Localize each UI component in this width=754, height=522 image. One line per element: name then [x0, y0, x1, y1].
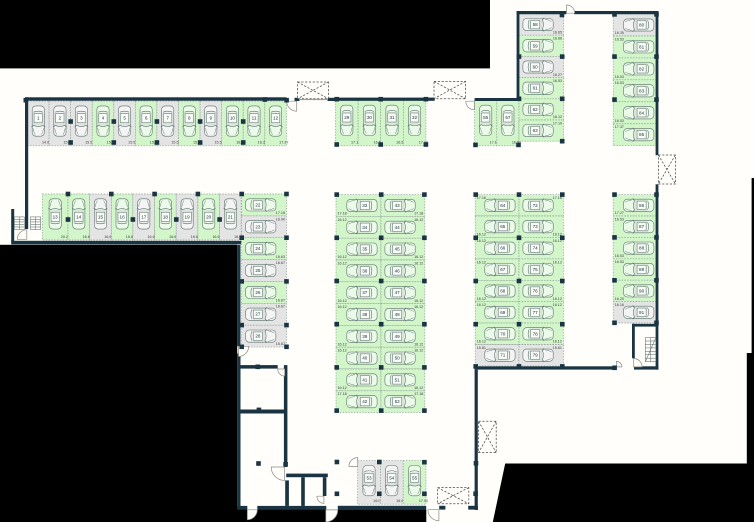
svg-text:67: 67	[500, 267, 506, 272]
svg-text:23: 23	[255, 224, 261, 229]
svg-text:89: 89	[639, 267, 645, 272]
svg-text:16.66: 16.66	[553, 37, 562, 41]
svg-text:15.81: 15.81	[553, 346, 562, 350]
svg-text:18: 18	[163, 214, 169, 219]
svg-text:3: 3	[80, 116, 83, 121]
svg-text:17.27: 17.27	[615, 211, 624, 215]
svg-text:83: 83	[639, 88, 645, 93]
svg-text:16.12: 16.12	[338, 299, 347, 303]
svg-text:16.12: 16.12	[477, 233, 486, 237]
svg-text:10: 10	[230, 116, 236, 121]
svg-text:16.12: 16.12	[553, 303, 562, 307]
svg-text:84: 84	[639, 110, 645, 115]
svg-text:16.12: 16.12	[477, 260, 486, 264]
svg-text:16.53: 16.53	[553, 79, 562, 83]
svg-text:16.12: 16.12	[414, 218, 423, 222]
svg-text:76: 76	[533, 289, 539, 294]
svg-text:42: 42	[362, 399, 368, 404]
svg-text:16.12: 16.12	[477, 303, 486, 307]
svg-text:16.12: 16.12	[477, 297, 486, 301]
svg-text:16.12: 16.12	[338, 342, 347, 346]
svg-text:35: 35	[362, 247, 368, 252]
svg-text:16.16: 16.16	[615, 303, 624, 307]
svg-text:30: 30	[367, 115, 373, 120]
svg-text:47: 47	[395, 290, 401, 295]
svg-text:41: 41	[362, 377, 368, 382]
svg-text:53: 53	[366, 475, 372, 480]
svg-text:16.12: 16.12	[338, 255, 347, 259]
svg-text:55: 55	[412, 475, 418, 480]
svg-text:65: 65	[500, 224, 506, 229]
svg-text:17.00: 17.00	[419, 499, 428, 503]
svg-text:13: 13	[53, 214, 59, 219]
svg-text:17.18: 17.18	[414, 392, 423, 396]
svg-text:24: 24	[255, 246, 261, 251]
svg-text:75: 75	[533, 267, 539, 272]
svg-text:16.12: 16.12	[338, 261, 347, 265]
svg-text:48: 48	[395, 312, 401, 317]
svg-text:60: 60	[533, 65, 539, 70]
svg-text:17.18: 17.18	[338, 392, 347, 396]
svg-text:16.53: 16.53	[615, 75, 624, 79]
svg-text:16.12: 16.12	[414, 349, 423, 353]
svg-text:15.81: 15.81	[477, 346, 486, 350]
svg-text:16.53: 16.53	[615, 119, 624, 123]
svg-text:17.18: 17.18	[414, 212, 423, 216]
svg-text:26: 26	[255, 290, 261, 295]
svg-text:6: 6	[145, 116, 148, 121]
svg-text:16.53: 16.53	[615, 217, 624, 221]
svg-text:16.12: 16.12	[338, 349, 347, 353]
svg-text:68: 68	[500, 289, 506, 294]
svg-text:16.35: 16.35	[615, 31, 624, 35]
svg-text:62: 62	[533, 107, 539, 112]
svg-text:66: 66	[500, 246, 506, 251]
svg-text:2: 2	[59, 116, 62, 121]
svg-text:17.37: 17.37	[279, 141, 288, 145]
svg-text:74: 74	[533, 246, 539, 251]
svg-text:21: 21	[228, 214, 234, 219]
svg-text:5: 5	[123, 116, 126, 121]
svg-text:91: 91	[639, 310, 645, 315]
svg-text:11: 11	[252, 116, 257, 121]
svg-text:36: 36	[362, 268, 368, 273]
svg-text:46: 46	[395, 268, 401, 273]
svg-text:16.20: 16.20	[615, 297, 624, 301]
svg-text:9: 9	[210, 116, 213, 121]
svg-text:56: 56	[483, 115, 489, 120]
svg-text:81: 81	[639, 44, 645, 49]
svg-text:72: 72	[533, 203, 539, 208]
svg-text:14: 14	[76, 214, 82, 219]
svg-text:44: 44	[395, 225, 401, 230]
svg-text:50: 50	[395, 356, 401, 361]
svg-text:61: 61	[533, 86, 539, 91]
svg-text:38: 38	[362, 312, 368, 317]
svg-text:8: 8	[188, 116, 191, 121]
svg-text:54: 54	[389, 475, 395, 480]
svg-text:7: 7	[166, 116, 169, 121]
svg-text:90: 90	[639, 288, 645, 293]
svg-text:16.53: 16.53	[615, 37, 624, 41]
svg-text:57: 57	[505, 115, 511, 120]
svg-text:16.12: 16.12	[414, 299, 423, 303]
svg-text:16.67: 16.67	[276, 299, 285, 303]
svg-text:77: 77	[533, 310, 539, 315]
svg-text:70: 70	[500, 331, 506, 336]
svg-text:16.12: 16.12	[553, 260, 562, 264]
svg-text:52: 52	[395, 399, 401, 404]
svg-text:58: 58	[533, 22, 539, 27]
svg-text:37: 37	[362, 290, 368, 295]
svg-text:80: 80	[639, 23, 645, 28]
svg-text:16.12: 16.12	[338, 305, 347, 309]
svg-text:45: 45	[395, 247, 401, 252]
svg-text:59: 59	[533, 43, 539, 48]
svg-text:78: 78	[533, 331, 539, 336]
svg-text:29: 29	[344, 115, 350, 120]
svg-text:16.63: 16.63	[276, 255, 285, 259]
svg-text:16.12: 16.12	[553, 297, 562, 301]
svg-text:49: 49	[395, 334, 401, 339]
svg-text:64: 64	[500, 203, 506, 208]
svg-text:22: 22	[255, 202, 261, 207]
svg-text:79: 79	[533, 353, 539, 358]
svg-text:16.12: 16.12	[414, 386, 423, 390]
svg-text:73: 73	[533, 224, 539, 229]
svg-text:19: 19	[185, 214, 191, 219]
svg-text:39: 39	[362, 334, 368, 339]
svg-text:16.12: 16.12	[477, 340, 486, 344]
svg-text:16.12: 16.12	[414, 342, 423, 346]
svg-text:32: 32	[412, 115, 418, 120]
svg-text:16.12: 16.12	[338, 218, 347, 222]
svg-text:16.67: 16.67	[276, 261, 285, 265]
svg-text:17.37: 17.37	[615, 125, 624, 129]
svg-text:15: 15	[98, 214, 104, 219]
svg-text:87: 87	[639, 224, 645, 229]
svg-text:86: 86	[639, 203, 645, 208]
svg-text:43: 43	[395, 203, 401, 208]
svg-text:16.12: 16.12	[477, 239, 486, 243]
svg-text:17.18: 17.18	[338, 212, 347, 216]
svg-text:33: 33	[362, 203, 368, 208]
svg-text:16.67: 16.67	[276, 342, 285, 346]
svg-text:85: 85	[639, 132, 645, 137]
svg-text:16.00: 16.00	[276, 217, 285, 221]
svg-text:16.12: 16.12	[553, 340, 562, 344]
svg-text:16.27: 16.27	[553, 73, 562, 77]
svg-text:28: 28	[255, 334, 261, 339]
svg-text:16.12: 16.12	[414, 255, 423, 259]
svg-text:16.12: 16.12	[338, 386, 347, 390]
svg-text:69: 69	[500, 310, 506, 315]
svg-text:16.53: 16.53	[615, 81, 624, 85]
svg-text:25: 25	[255, 268, 261, 273]
svg-text:16.53: 16.53	[615, 254, 624, 258]
svg-text:16.12: 16.12	[553, 115, 562, 119]
svg-text:51: 51	[395, 377, 401, 382]
svg-text:71: 71	[500, 353, 506, 358]
svg-text:63: 63	[533, 128, 539, 133]
svg-text:34: 34	[362, 225, 368, 230]
svg-text:16.12: 16.12	[414, 305, 423, 309]
svg-text:31: 31	[389, 115, 395, 120]
svg-text:16: 16	[120, 214, 126, 219]
svg-text:17.19: 17.19	[553, 121, 562, 125]
svg-text:16.67: 16.67	[276, 305, 285, 309]
svg-text:16.65: 16.65	[553, 30, 562, 34]
svg-text:16.53: 16.53	[615, 260, 624, 264]
svg-text:20: 20	[206, 214, 212, 219]
svg-text:4: 4	[102, 116, 105, 121]
svg-text:27: 27	[255, 312, 261, 317]
svg-text:82: 82	[639, 66, 645, 71]
svg-text:17.16: 17.16	[477, 196, 486, 200]
svg-text:17: 17	[141, 214, 147, 219]
svg-text:40: 40	[362, 356, 368, 361]
svg-text:88: 88	[639, 246, 645, 251]
svg-text:12: 12	[273, 116, 279, 121]
svg-text:16.12: 16.12	[414, 261, 423, 265]
svg-text:17.18: 17.18	[276, 211, 285, 215]
svg-text:1: 1	[37, 116, 40, 121]
